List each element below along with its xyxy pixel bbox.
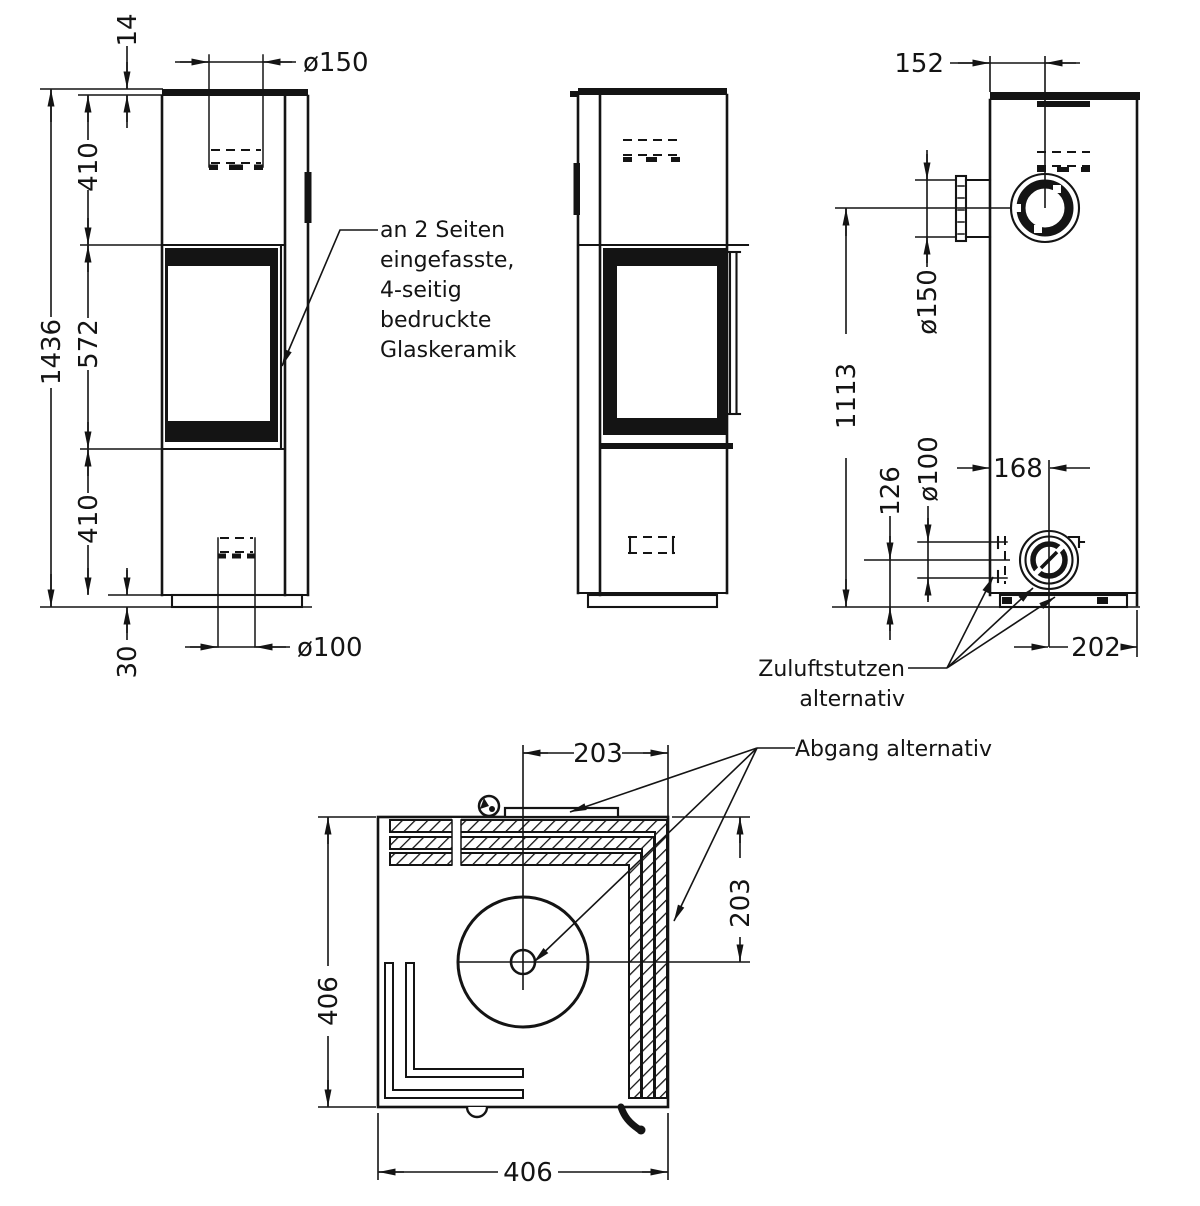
- front-door-glass: [168, 266, 270, 421]
- side-flue-stub-foot: [623, 157, 632, 162]
- rear-plinth-foot: [1097, 597, 1108, 604]
- plan-cable: [621, 1107, 640, 1130]
- rear-flue-notch: [1013, 204, 1021, 212]
- side-view: [570, 88, 748, 607]
- rear-top-stub-foot: [1057, 167, 1069, 172]
- stove-technical-drawing: 14 410 572 410 1436 30 ø150 ø100: [0, 0, 1200, 1206]
- glass-note-line4: bedruckte: [380, 308, 491, 333]
- rear-flue-notch: [1053, 185, 1061, 193]
- dim-label-front-total-height: 1436: [37, 319, 67, 385]
- plan-grill-separator: [452, 818, 461, 867]
- plan-top-knockout: [505, 808, 618, 817]
- air-note-line1: Zuluftstutzen: [758, 657, 905, 682]
- dim-label-front-lower-height: 410: [74, 494, 104, 544]
- side-flue-stub-foot: [671, 157, 680, 162]
- front-air-stub-foot: [232, 554, 241, 559]
- dim-label-front-air-diameter: ø100: [297, 633, 363, 663]
- side-door-glass: [617, 266, 717, 418]
- dim-label-rear-flue-offset: 152: [894, 49, 944, 79]
- front-air-stub-foot: [218, 554, 226, 559]
- outlet-note-line1: Abgang alternativ: [795, 737, 992, 762]
- air-note-line2: alternativ: [799, 687, 905, 712]
- front-plinth: [172, 595, 302, 607]
- side-plinth: [588, 595, 717, 607]
- dim-label-rear-air-offset-left: 168: [993, 454, 1043, 484]
- glass-note-line2: eingefasste,: [380, 248, 514, 273]
- rear-top-plate: [990, 92, 1140, 100]
- front-door-handle: [305, 172, 312, 223]
- front-flue-stub-foot: [254, 165, 263, 171]
- dim-label-plan-width: 406: [503, 1158, 553, 1188]
- plan-cable-end: [637, 1126, 646, 1135]
- dim-label-front-door-height: 572: [74, 319, 104, 369]
- dim-label-front-upper-height: 410: [74, 142, 104, 192]
- side-door-handle-front: [574, 163, 581, 215]
- dim-label-plan-center-to-side: 203: [573, 739, 623, 769]
- side-door-bottom-edge: [600, 443, 733, 449]
- plan-knob-detail: [489, 806, 495, 812]
- glass-annotation: an 2 Seiten eingefasste, 4-seitig bedruc…: [282, 218, 517, 366]
- rear-plinth-foot: [1002, 597, 1012, 604]
- dim-label-rear-flue-height: 1113: [832, 363, 862, 429]
- rear-top-stub-foot: [1081, 167, 1090, 172]
- front-air-stub-foot: [247, 554, 255, 559]
- dim-label-rear-flue-diameter: ø150: [913, 269, 943, 335]
- glass-note-line5: Glaskeramik: [380, 338, 517, 363]
- glass-note-line3: 4-seitig: [380, 278, 462, 303]
- front-flue-stub-foot: [209, 165, 218, 171]
- glass-note-line1: an 2 Seiten: [380, 218, 505, 243]
- leader-line: [947, 588, 1033, 668]
- rear-view: [832, 92, 1140, 607]
- dim-label-front-plinth-height: 30: [113, 645, 143, 678]
- leader-line: [947, 577, 993, 668]
- dim-label-rear-air-diameter: ø100: [914, 436, 944, 502]
- rear-dimensions: 152 ø150 1113 126 ø100 168 202: [832, 49, 1137, 663]
- dim-label-rear-air-height: 126: [876, 466, 906, 516]
- front-flue-stub-foot: [229, 165, 243, 171]
- dim-label-plan-center-to-back: 203: [726, 878, 756, 928]
- dim-label-rear-air-offset-right: 202: [1071, 633, 1121, 663]
- dim-label-plan-depth: 406: [314, 976, 344, 1026]
- drawing-page: 14 410 572 410 1436 30 ø150 ø100: [0, 0, 1200, 1206]
- dim-label-front-plate-thickness: 14: [113, 13, 143, 46]
- plan-foot-bump: [467, 1107, 487, 1117]
- side-flue-stub-foot: [646, 157, 657, 162]
- dim-label-front-flue-diameter: ø150: [303, 48, 369, 78]
- rear-flue-notch: [1034, 225, 1042, 233]
- leader-line: [282, 230, 378, 366]
